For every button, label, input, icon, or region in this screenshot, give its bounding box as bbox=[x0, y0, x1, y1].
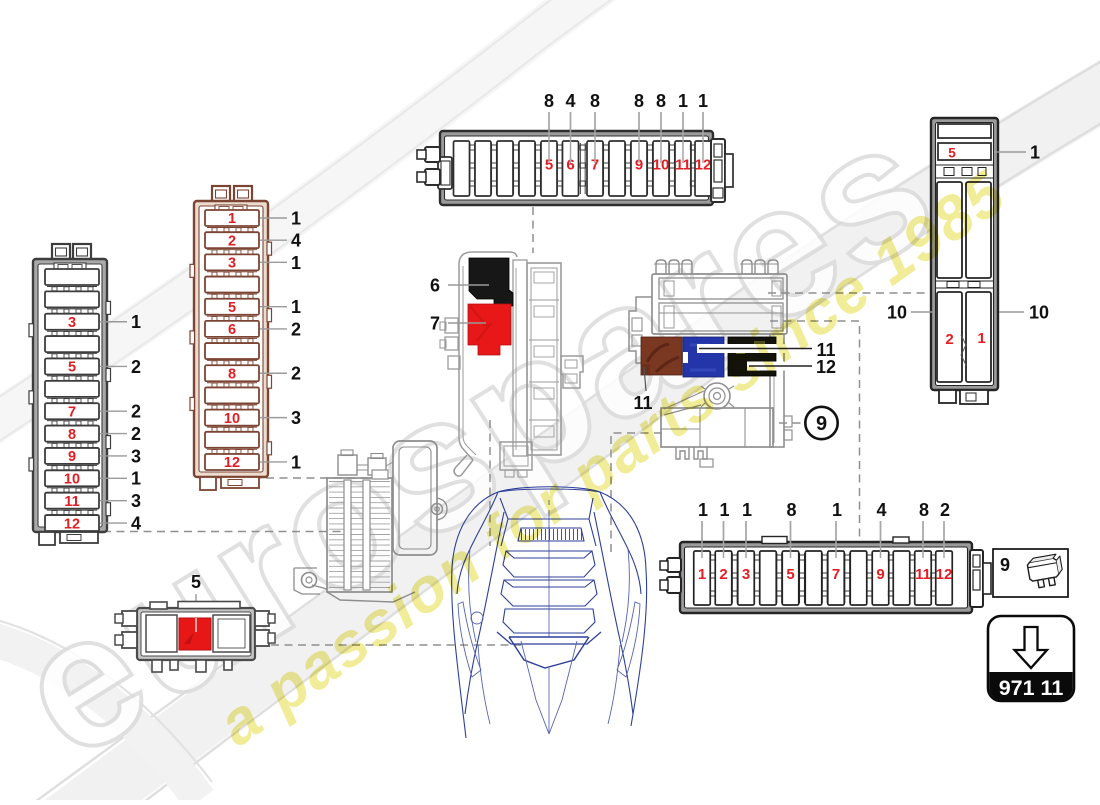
svg-text:10: 10 bbox=[224, 411, 240, 427]
svg-text:2: 2 bbox=[945, 331, 953, 348]
svg-text:1: 1 bbox=[291, 297, 301, 317]
svg-text:1: 1 bbox=[719, 500, 729, 520]
svg-text:1: 1 bbox=[977, 330, 985, 347]
svg-text:7: 7 bbox=[832, 566, 840, 583]
svg-text:3: 3 bbox=[228, 256, 236, 272]
svg-text:8: 8 bbox=[228, 366, 236, 382]
svg-text:10: 10 bbox=[1029, 303, 1049, 323]
svg-text:2: 2 bbox=[291, 319, 301, 339]
svg-text:5: 5 bbox=[786, 566, 794, 583]
svg-text:1: 1 bbox=[698, 566, 706, 583]
svg-text:1: 1 bbox=[291, 208, 301, 228]
svg-text:1: 1 bbox=[228, 211, 236, 227]
svg-text:3: 3 bbox=[68, 315, 76, 331]
svg-text:4: 4 bbox=[565, 91, 575, 111]
svg-text:2: 2 bbox=[719, 566, 727, 583]
svg-text:1: 1 bbox=[291, 452, 301, 472]
svg-text:11: 11 bbox=[915, 566, 931, 583]
svg-text:3: 3 bbox=[291, 408, 301, 428]
svg-text:4: 4 bbox=[291, 231, 301, 251]
svg-text:5: 5 bbox=[948, 146, 956, 161]
svg-text:8: 8 bbox=[634, 91, 644, 111]
svg-text:12: 12 bbox=[64, 516, 80, 532]
svg-text:3: 3 bbox=[742, 566, 750, 583]
svg-text:8: 8 bbox=[786, 500, 796, 520]
svg-text:11: 11 bbox=[64, 494, 79, 510]
svg-text:12: 12 bbox=[224, 455, 240, 471]
svg-text:2: 2 bbox=[131, 424, 141, 444]
svg-text:9: 9 bbox=[816, 413, 827, 435]
svg-text:10: 10 bbox=[64, 472, 80, 488]
svg-text:1: 1 bbox=[1030, 143, 1040, 163]
svg-text:7: 7 bbox=[430, 314, 440, 334]
svg-text:5: 5 bbox=[191, 572, 201, 592]
svg-text:5: 5 bbox=[228, 300, 236, 316]
svg-text:2: 2 bbox=[131, 357, 141, 377]
svg-text:2: 2 bbox=[228, 233, 236, 249]
svg-text:8: 8 bbox=[68, 427, 76, 443]
svg-text:2: 2 bbox=[291, 364, 301, 384]
svg-text:5: 5 bbox=[68, 360, 76, 376]
svg-text:4: 4 bbox=[876, 500, 886, 520]
svg-text:1: 1 bbox=[131, 469, 141, 489]
svg-text:6: 6 bbox=[228, 322, 236, 338]
svg-text:1: 1 bbox=[698, 91, 708, 111]
svg-text:2: 2 bbox=[131, 402, 141, 422]
svg-text:1: 1 bbox=[131, 312, 141, 332]
svg-text:9: 9 bbox=[876, 566, 884, 583]
svg-text:1: 1 bbox=[742, 500, 752, 520]
svg-text:2: 2 bbox=[940, 500, 950, 520]
svg-text:12: 12 bbox=[816, 357, 836, 377]
svg-text:1: 1 bbox=[698, 500, 708, 520]
svg-text:8: 8 bbox=[919, 500, 929, 520]
svg-text:4: 4 bbox=[131, 513, 141, 533]
svg-text:12: 12 bbox=[936, 566, 953, 583]
svg-text:971 11: 971 11 bbox=[999, 676, 1064, 700]
svg-text:8: 8 bbox=[590, 91, 600, 111]
svg-text:9: 9 bbox=[1000, 555, 1010, 575]
svg-text:3: 3 bbox=[131, 491, 141, 511]
svg-text:3: 3 bbox=[131, 446, 141, 466]
svg-text:8: 8 bbox=[656, 91, 666, 111]
svg-text:1: 1 bbox=[291, 253, 301, 273]
svg-text:6: 6 bbox=[430, 276, 440, 296]
svg-text:10: 10 bbox=[887, 303, 907, 323]
svg-text:9: 9 bbox=[68, 449, 76, 465]
svg-text:8: 8 bbox=[544, 91, 554, 111]
svg-text:1: 1 bbox=[678, 91, 688, 111]
svg-text:7: 7 bbox=[68, 404, 76, 420]
svg-text:1: 1 bbox=[832, 500, 842, 520]
